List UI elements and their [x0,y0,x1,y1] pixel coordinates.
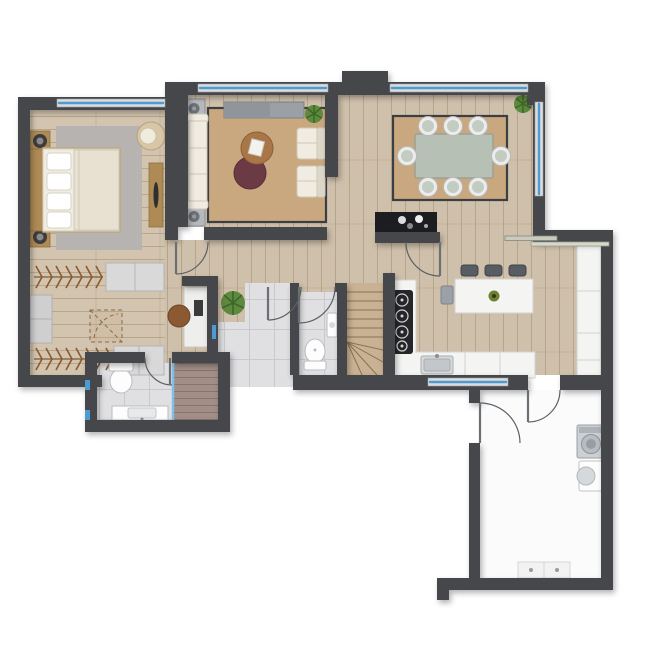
armchair-bottom [297,166,325,197]
desk-monitor [194,300,203,316]
bathroom-toilet-bowl [110,369,132,393]
closet-drawer [30,319,52,343]
bathroom-glass-block [85,380,90,390]
pillow [47,212,71,228]
bar-stool [509,265,526,276]
faucet-icon [435,354,439,358]
wc-toilet-tank [304,361,326,370]
plant-living-icon [305,105,323,123]
cabinet-knob-icon [555,568,559,572]
black-sideboard [375,212,437,233]
armchair-top [297,128,325,159]
cabinet-knob-icon [529,568,533,572]
floor-plan-drawing [0,0,650,650]
bar-stool [485,265,502,276]
bathroom-toilet-tank [109,362,133,371]
dresser-decor [154,182,159,208]
dining-table [415,134,493,178]
floor-plan-canvas [0,0,650,650]
dryer-door-icon [577,467,595,485]
pillow [47,173,71,190]
desk-chair [168,305,190,327]
hall-glass-tick [212,325,216,339]
island-chair [441,286,453,304]
vanity-basin [128,408,156,418]
bed-duvet [74,150,119,230]
sideboard-decor [398,216,406,224]
closet-drawer [30,295,52,319]
plant-hall-icon [221,291,245,315]
living-room-rug [208,108,326,222]
bar-stool [461,265,478,276]
bathroom-glass-block [85,410,90,420]
pillow [47,153,71,170]
bed-headboard [30,149,43,231]
tall-cabinet-column [577,244,601,378]
pillow [47,193,71,210]
shower-floor [174,363,218,420]
